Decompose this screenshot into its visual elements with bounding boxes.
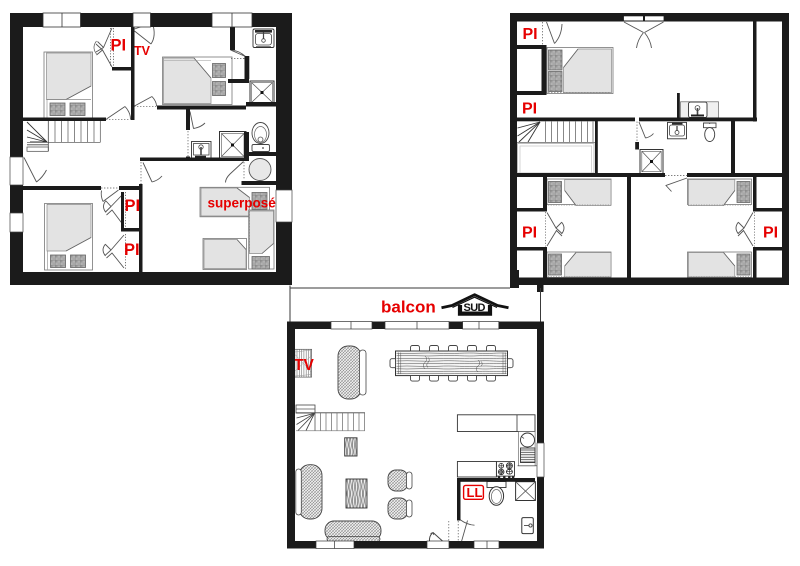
svg-text:PI: PI (763, 225, 778, 242)
svg-text:TV: TV (294, 357, 314, 374)
svg-text:PI: PI (124, 241, 140, 259)
svg-text:PI: PI (111, 37, 127, 55)
svg-text:balcon: balcon (381, 298, 436, 317)
svg-text:superposés: superposés (208, 196, 284, 211)
svg-text:LL: LL (467, 485, 483, 500)
svg-text:TV: TV (134, 44, 151, 58)
svg-text:SUD: SUD (464, 302, 486, 314)
svg-text:PI: PI (125, 197, 141, 215)
svg-text:PI: PI (523, 26, 538, 43)
svg-text:PI: PI (522, 225, 537, 242)
svg-text:PI: PI (522, 101, 537, 118)
